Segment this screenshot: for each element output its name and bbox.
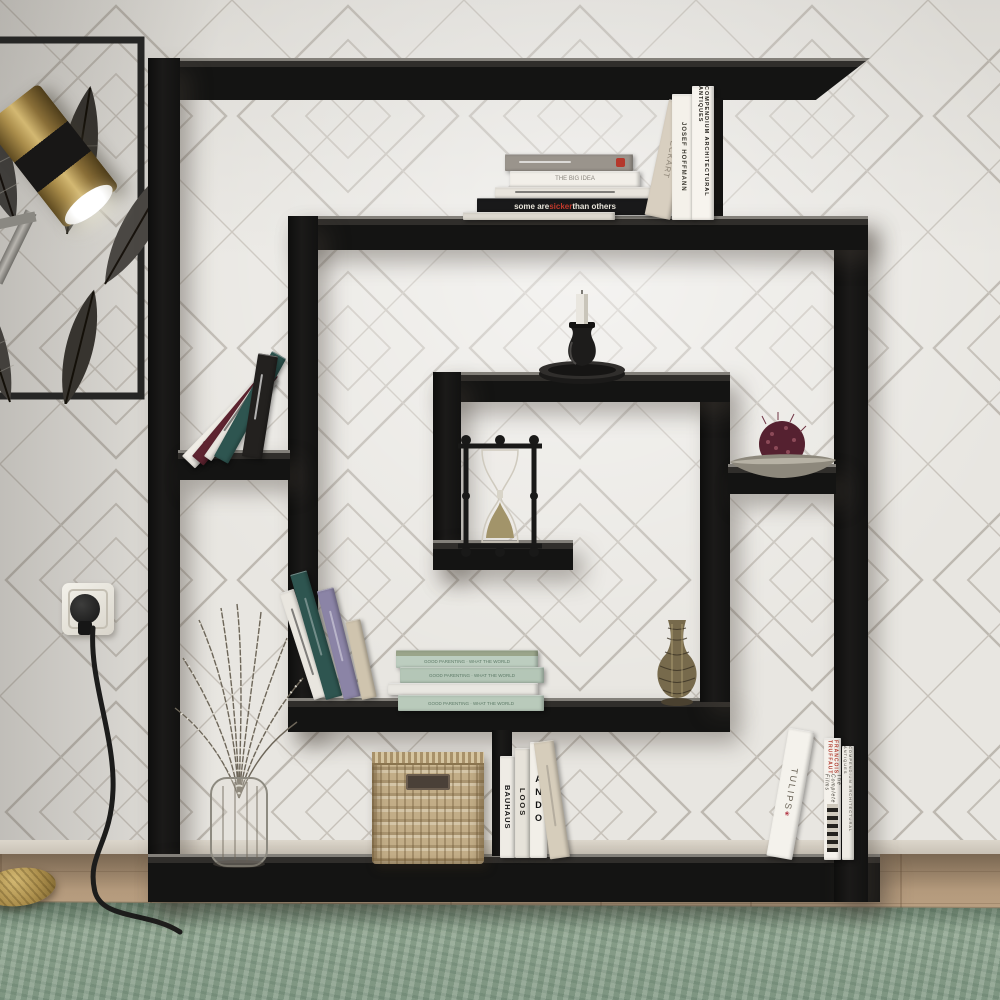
book-white-thin [495,187,653,198]
basket-rim [372,752,484,765]
book-bauhaus: BAUHAUS [500,756,515,858]
book-loos: LOOS [515,748,530,858]
bottom-right-books: TULIPS❀ FRANCOIS TRUFFAUT The Complete F… [764,722,860,862]
book-compendium-2: COMPENDIUM ARCHITECTURAL ANTIQUES [842,746,854,860]
lamp-body [0,83,119,229]
decorative-bowl [726,408,840,482]
green-book-stack: GOOD PARENTING · WHAT THE WORLD GOOD PAR… [386,650,548,712]
book-title: FRANCOIS TRUFFAUT [827,740,839,774]
book-title: THE BIG IDEA [510,171,640,187]
wicker-basket [372,752,484,864]
book-title: BAUHAUS [500,756,515,858]
book-title: LOOS [515,748,530,858]
book-title: JOSEF HOFFMANN [672,94,694,220]
basket-label [406,774,450,790]
top-right-books: ECKART JOSEF HOFFMANN COMPENDIUM ARCHITE… [644,86,724,220]
candlestick [536,290,628,386]
book-truffaut: FRANCOIS TRUFFAUT The Complete Films [824,738,841,860]
book-title: GOOD PARENTING · WHAT THE WORLD [398,695,544,711]
book-compendium: COMPENDIUM ARCHITECTURAL ANTIQUES [692,86,714,220]
top-book-stack: THE BIG IDEA some are sicker than others [455,148,655,222]
book-base-thin [463,212,615,220]
book-green-3: GOOD PARENTING · WHAT THE WORLD [398,695,544,711]
book-green-2: GOOD PARENTING · WHAT THE WORLD [400,667,544,683]
book-title: GOOD PARENTING · WHAT THE WORLD [400,667,544,683]
branch-buds [177,606,301,794]
film-strip [827,804,838,852]
book-big-idea: THE BIG IDEA [510,171,640,187]
book-title: COMPENDIUM ARCHITECTURAL ANTIQUES [692,86,714,220]
glass-vase [211,778,267,866]
wall-lamp [0,88,140,268]
book-josef-hoffmann: JOSEF HOFFMANN [672,94,694,220]
book-silver [388,683,538,695]
book-title-post: than others [572,202,616,211]
wire-vase [646,618,708,708]
dried-branch-vase [165,598,313,870]
tulip-icon: ❀ [782,810,790,820]
publisher-mark [616,158,625,167]
book-green-1: GOOD PARENTING · WHAT THE WORLD [396,650,538,668]
book-title-highlight: sicker [549,202,572,211]
book-title: GOOD PARENTING · WHAT THE WORLD [396,650,538,668]
book-title: COMPENDIUM ARCHITECTURAL ANTIQUES [842,746,854,860]
living-room-scene: THE BIG IDEA some are sicker than others… [0,0,1000,1000]
middle-left-books: Fashion Branding [180,348,292,458]
leaf-dish [730,454,836,478]
book-gray [505,154,633,171]
book-title-pre: some are [514,202,549,211]
hourglass [452,434,548,558]
candle [584,294,588,324]
shelf-top-board [148,58,870,100]
book-subtitle: The Complete Films [824,774,841,804]
bottom-center-books: BAUHAUS LOOS ANDO [498,734,583,860]
book-tulips: TULIPS❀ [766,727,814,860]
book-title: TULIPS❀ [766,727,814,860]
lamp-light [59,178,118,231]
